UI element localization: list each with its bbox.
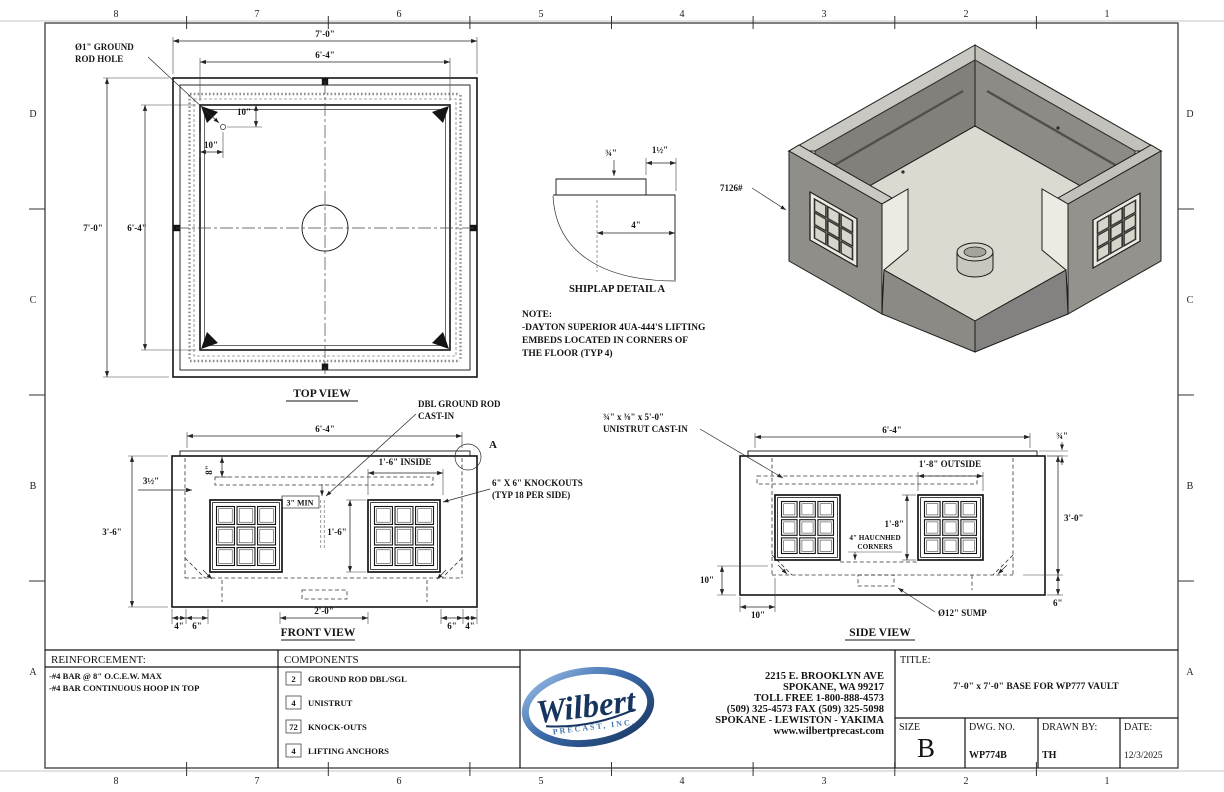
note-line: THE FLOOR (TYP 4)	[522, 348, 613, 359]
reinforcement-item: -#4 BAR CONTINUOUS HOOP IN TOP	[49, 683, 199, 693]
address-line: SPOKANE - LEWISTON - YAKIMA	[715, 715, 884, 726]
unistrut-label: ¾" x ⅜" x 5'-0"	[603, 412, 664, 422]
note-block: NOTE: -DAYTON SUPERIOR 4UA-444'S LIFTING…	[522, 310, 706, 359]
unistrut-hidden	[215, 477, 433, 485]
size-label: SIZE	[899, 722, 920, 733]
dim-6-side: 6"	[1053, 598, 1063, 608]
zone-number: 1	[1105, 776, 1110, 787]
date-value: 12/3/2025	[1124, 751, 1163, 761]
address-line: SPOKANE, WA 99217	[783, 682, 884, 693]
weight-label: 7126#	[720, 183, 743, 193]
detail-a-letter: A	[489, 439, 497, 451]
components-list: 2 GROUND ROD DBL/SGL 4 UNISTRUT 72 KNOCK…	[286, 672, 407, 757]
zone-letter: C	[1187, 295, 1194, 306]
top-view-title: TOP VIEW	[293, 388, 351, 400]
dim-7-0-top: 7'-0"	[315, 29, 335, 39]
company-logo: Wilbert PRECAST, INC.	[521, 664, 655, 751]
knockout-grid-front-right	[368, 500, 440, 572]
zone-letter: A	[1186, 667, 1194, 678]
drawn-by-value: TH	[1042, 750, 1057, 761]
dim-10-v: 10"	[237, 107, 251, 117]
company-address: 2215 E. BROOKLYN AVE SPOKANE, WA 99217 T…	[715, 671, 884, 737]
top-view: Ø1" GROUND ROD HOLE 7'-0" 6'-4" 7'-0" 6'…	[75, 29, 477, 401]
dim-b-6r: 6"	[447, 621, 457, 631]
side-view-title: SIDE VIEW	[849, 627, 911, 639]
ground-rod-hole-label: Ø1" GROUND	[75, 42, 134, 52]
component-qty: 2	[291, 674, 295, 684]
ground-rod-front	[321, 484, 324, 548]
dim-10v: 10"	[700, 575, 714, 585]
dim-8: 8"	[204, 465, 214, 475]
knockouts-label: 6" X 6" KNOCKOUTS	[492, 478, 583, 488]
component-name: GROUND ROD DBL/SGL	[308, 674, 407, 684]
knockout-grid-front-left	[210, 500, 282, 572]
dim-outside: 1'-8" OUTSIDE	[919, 459, 981, 469]
dim-b-4l: 4"	[174, 621, 184, 631]
zone-letter: C	[30, 295, 37, 306]
dim-lip: ¾"	[605, 148, 617, 158]
isometric-view: 7126#	[720, 45, 1161, 352]
dim-3min: 3" MIN	[287, 499, 314, 508]
dim-3-6: 3'-6"	[102, 527, 122, 537]
min-3in-callout: 3" MIN	[282, 496, 319, 508]
component-qty: 72	[289, 722, 298, 732]
title-block: REINFORCEMENT: -#4 BAR @ 8" O.C.E.W. MAX…	[45, 650, 1178, 768]
sump-hidden-side	[858, 575, 894, 586]
knockout-grid-side-right	[918, 495, 983, 560]
zone-number: 2	[964, 776, 969, 787]
sump-label: Ø12" SUMP	[938, 608, 987, 618]
dim-b-20: 2'-0"	[314, 606, 334, 616]
unistrut-label: UNISTRUT CAST-IN	[603, 424, 688, 434]
dim-ko-h: 1'-6"	[327, 527, 347, 537]
dim-6-4-side: 6'-4"	[882, 425, 902, 435]
zone-number: 6	[397, 9, 402, 20]
component-qty: 4	[291, 746, 296, 756]
haunch-callout: 4" HAUCNHED CORNERS	[848, 534, 902, 560]
zone-letter: A	[29, 667, 37, 678]
dwg-no-label: DWG. NO.	[969, 722, 1015, 733]
address-line: 2215 E. BROOKLYN AVE	[765, 671, 884, 682]
address-line: TOLL FREE 1-800-888-4573	[754, 693, 884, 704]
reinforcement-header: REINFORCEMENT:	[51, 654, 146, 666]
zone-number: 7	[255, 776, 260, 787]
dim-inside: 1'-6" INSIDE	[379, 457, 432, 467]
sump-hidden	[302, 590, 347, 599]
zone-number: 5	[539, 9, 544, 20]
reinforcement-item: -#4 BAR @ 8" O.C.E.W. MAX	[49, 671, 163, 681]
dim-b-6l: 6"	[192, 621, 202, 631]
address-line: www.wilbertprecast.com	[773, 726, 884, 737]
zone-number: 8	[114, 776, 119, 787]
haunch-label: CORNERS	[857, 543, 892, 551]
component-name: UNISTRUT	[308, 698, 353, 708]
address-line: (509) 325-4573 FAX (509) 325-5098	[727, 704, 884, 715]
zone-number: 7	[255, 9, 260, 20]
zone-letter: B	[1187, 481, 1194, 492]
front-view: DBL GROUND ROD CAST-IN A 6" X 6" KNOCKOU…	[102, 399, 583, 640]
dim-6-4-left: 6'-4"	[127, 223, 147, 233]
zone-number: 1	[1105, 9, 1110, 20]
dim-b-4r: 4"	[465, 621, 475, 631]
ground-rod-hole-label: ROD HOLE	[75, 54, 123, 64]
zone-number: 2	[964, 9, 969, 20]
dim-6-4: 6'-4"	[315, 424, 335, 434]
front-view-title: FRONT VIEW	[281, 627, 356, 639]
drawing-title: 7'-0" x 7'-0" BASE FOR WP777 VAULT	[953, 682, 1119, 692]
zone-number: 6	[397, 776, 402, 787]
zone-number: 4	[680, 9, 685, 20]
dim-wall: 3½"	[143, 476, 159, 486]
sump-3d	[957, 243, 993, 277]
zone-letter: B	[30, 481, 37, 492]
ground-rod-hole	[220, 124, 225, 129]
unistrut-hidden-side	[757, 476, 977, 484]
note-line: NOTE:	[522, 310, 552, 320]
component-name: KNOCK-OUTS	[308, 722, 367, 732]
haunch-label: 4" HAUCNHED	[849, 534, 900, 542]
component-qty: 4	[291, 698, 296, 708]
side-view: ¾" x ⅜" x 5'-0" UNISTRUT CAST-IN 4" HAUC…	[603, 412, 1084, 640]
size-value: B	[917, 733, 935, 763]
note-line: EMBEDS LOCATED IN CORNERS OF	[522, 336, 688, 346]
zone-number: 4	[680, 776, 685, 787]
zone-letter: D	[1186, 109, 1193, 120]
dim-ko-h-side: 1'-8"	[885, 519, 905, 529]
dim-10h: 10"	[751, 610, 765, 620]
side-view-dimensions: 6'-4" ¾" 1'-8" OUTSIDE 1'-8" 3'-0" 6" 10…	[700, 425, 1084, 620]
dim-4in: 4"	[631, 220, 641, 230]
drawing-canvas: 8 7 6 5 4 3 2 1 8 7 6 5 4 3 2 1 D C B A …	[0, 0, 1224, 792]
dim-lip-side: ¾"	[1056, 431, 1068, 441]
zone-number: 3	[822, 9, 827, 20]
date-label: DATE:	[1124, 722, 1152, 733]
note-line: -DAYTON SUPERIOR 4UA-444'S LIFTING	[522, 323, 706, 333]
component-name: LIFTING ANCHORS	[308, 746, 389, 756]
dim-3-0: 3'-0"	[1064, 513, 1084, 523]
zone-number: 3	[822, 776, 827, 787]
dim-10-h: 10"	[204, 140, 218, 150]
zone-number: 8	[114, 9, 119, 20]
title-label: TITLE:	[900, 655, 931, 666]
knockouts-label: (TYP 18 PER SIDE)	[492, 490, 570, 500]
dim-offset: 1½"	[652, 145, 668, 155]
dbl-ground-rod-label: DBL GROUND ROD	[418, 399, 501, 409]
dbl-ground-rod-label: CAST-IN	[418, 411, 455, 421]
knockout-grid-side-left	[775, 495, 840, 560]
drawn-by-label: DRAWN BY:	[1042, 722, 1097, 733]
engineering-drawing-sheet: 8 7 6 5 4 3 2 1 8 7 6 5 4 3 2 1 D C B A …	[0, 0, 1224, 792]
dwg-no-value: WP774B	[969, 750, 1007, 761]
shiplap-title: SHIPLAP DETAIL A	[569, 284, 666, 295]
dim-7-0-left: 7'-0"	[83, 223, 103, 233]
components-header: COMPONENTS	[284, 654, 359, 666]
shiplap-detail: 4" ¾" 1½" SHIPLAP DETAIL A	[553, 145, 676, 295]
top-view-dimensions: 7'-0" 6'-4" 7'-0" 6'-4" 10" 10"	[83, 29, 477, 377]
zone-letter: D	[29, 109, 36, 120]
dim-6-4-top: 6'-4"	[315, 50, 335, 60]
zone-number: 5	[539, 776, 544, 787]
